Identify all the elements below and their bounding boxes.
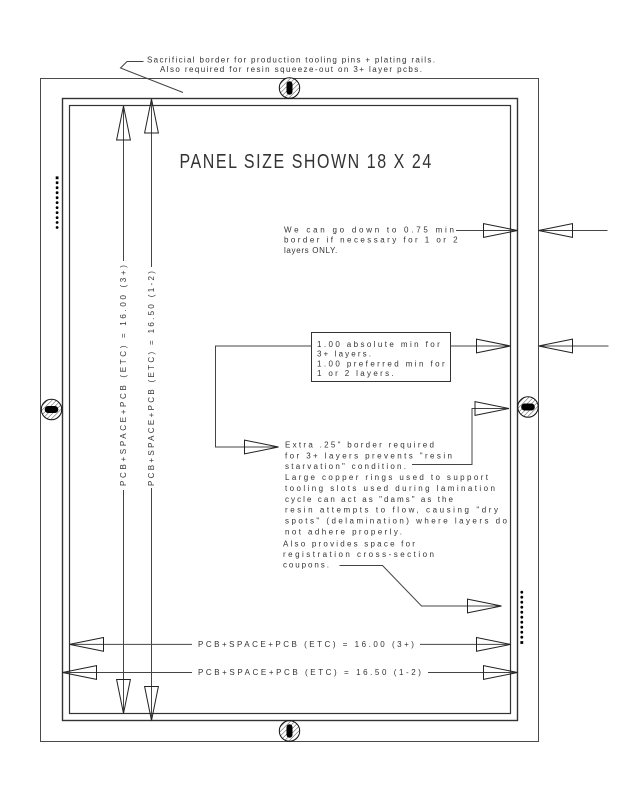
svg-text:1.00 absolute min for: 1.00 absolute min for bbox=[317, 340, 441, 349]
svg-text:Large copper rings used to sup: Large copper rings used to support bbox=[285, 473, 489, 482]
svg-text:Sacrificial border for product: Sacrificial border for production toolin… bbox=[147, 55, 436, 64]
svg-text:We can go down to 0.75 min: We can go down to 0.75 min bbox=[284, 225, 455, 234]
svg-text:border if necessary for 1 or 2: border if necessary for 1 or 2 bbox=[284, 236, 459, 245]
svg-text:3+ layers.: 3+ layers. bbox=[317, 349, 372, 358]
svg-text:starvation" condition.: starvation" condition. bbox=[285, 462, 407, 471]
svg-text:Extra .25" border required: Extra .25" border required bbox=[285, 440, 435, 449]
svg-text:PANEL SIZE SHOWN 18 X 24: PANEL SIZE SHOWN 18 X 24 bbox=[180, 149, 433, 172]
svg-text:registration cross-section: registration cross-section bbox=[283, 550, 435, 559]
svg-text:Also required for resin squee: Also required for resin squeeze-out on 3… bbox=[160, 65, 423, 74]
svg-text:tooling slots used during lami: tooling slots used during lamination bbox=[285, 484, 496, 493]
svg-text:Also provides space for: Also provides space for bbox=[283, 539, 416, 548]
svg-text:coupons.: coupons. bbox=[283, 560, 330, 569]
svg-text:not adhere properly.: not adhere properly. bbox=[285, 527, 403, 536]
svg-text:layers ONLY.: layers ONLY. bbox=[284, 246, 338, 255]
svg-text:spots" (delamination) where la: spots" (delamination) where layers do bbox=[285, 517, 508, 526]
svg-text:PCB+SPACE+PCB (ETC) = 16.00 (3: PCB+SPACE+PCB (ETC) = 16.00 (3+) bbox=[119, 264, 128, 486]
svg-text:resin attempts to flow, causin: resin attempts to flow, causing "dry bbox=[285, 506, 499, 515]
svg-text:1 or 2 layers.: 1 or 2 layers. bbox=[317, 369, 395, 378]
svg-text:for 3+ layers prevents "resin: for 3+ layers prevents "resin bbox=[285, 451, 453, 460]
svg-text:cycle can act as "dams" as the: cycle can act as "dams" as the bbox=[285, 495, 454, 504]
svg-text:PCB+SPACE+PCB (ETC) = 16.50 (1: PCB+SPACE+PCB (ETC) = 16.50 (1-2) bbox=[198, 668, 422, 677]
svg-text:PCB+SPACE+PCB (ETC) = 16.50 (1: PCB+SPACE+PCB (ETC) = 16.50 (1-2) bbox=[147, 270, 156, 486]
svg-text:1.00 preferred min for: 1.00 preferred min for bbox=[317, 359, 446, 368]
svg-text:PCB+SPACE+PCB (ETC) = 16.00 (3: PCB+SPACE+PCB (ETC) = 16.00 (3+) bbox=[198, 640, 415, 649]
